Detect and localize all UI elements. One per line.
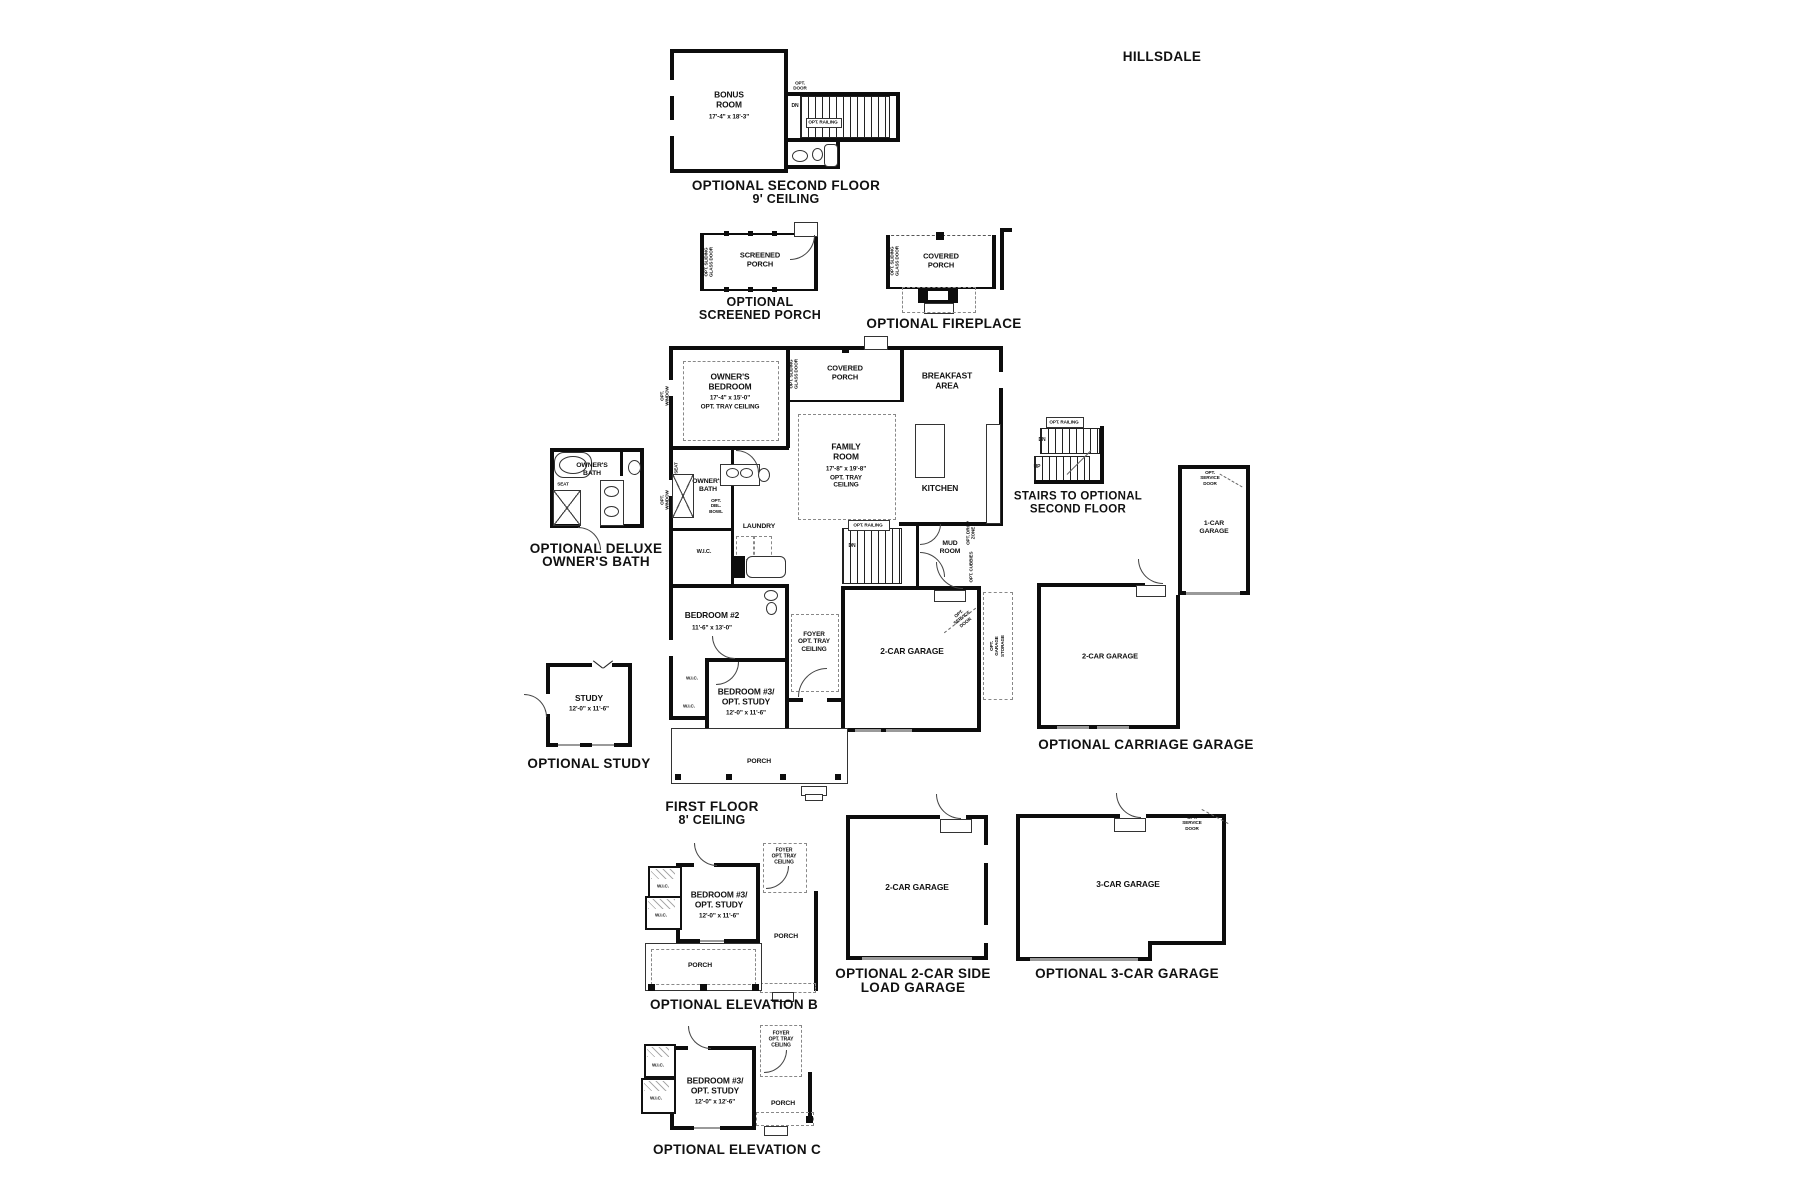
stair-treads xyxy=(800,96,890,138)
porch-post xyxy=(835,774,841,780)
vent-marker xyxy=(842,346,849,353)
wall xyxy=(1100,426,1104,484)
closet-hatch xyxy=(651,869,675,879)
bedroom2-dims: 11'-6" x 13'-0" xyxy=(692,624,732,631)
bedroom2-label: BEDROOM #2 xyxy=(685,611,739,621)
service-door-dash xyxy=(1219,474,1242,488)
bonus-room-dims: 17'-4" x 18'-3" xyxy=(709,113,749,120)
owners-bath-label: OWNER'S BATH xyxy=(576,462,608,478)
porch-label: PORCH xyxy=(747,758,771,766)
stair-treads xyxy=(842,528,902,584)
door-arc xyxy=(920,524,941,545)
toilet-fixture xyxy=(766,602,777,615)
study-label: STUDY xyxy=(575,694,603,704)
opt-sliding-note: OPT. SLIDING GLASS DOOR xyxy=(704,247,715,277)
wall xyxy=(620,448,623,476)
garage-door-mark xyxy=(1030,958,1138,961)
dn-label: DN xyxy=(848,544,855,550)
laundry-label: LAUNDRY xyxy=(743,523,775,531)
wall xyxy=(916,522,919,588)
toilet-fixture xyxy=(758,468,770,482)
garage-door-mark xyxy=(862,957,972,960)
wall xyxy=(788,400,902,402)
opt-service-door-note: OPT. SERVICE DOOR xyxy=(949,606,974,630)
fireplace-caption: OPTIONAL FIREPLACE xyxy=(866,316,1021,332)
wall xyxy=(669,528,734,531)
first-floor-ceiling: 8' CEILING xyxy=(678,813,745,827)
side-load-garage-label: 2-CAR GARAGE xyxy=(885,883,948,893)
closet-hatch xyxy=(648,899,675,909)
wall xyxy=(827,698,843,702)
wall xyxy=(900,346,904,402)
door-arc xyxy=(790,235,815,260)
garage-step xyxy=(940,819,972,833)
shower-fixture xyxy=(672,474,694,518)
closet-hatch xyxy=(644,1081,669,1091)
carriage-garage-caption: OPTIONAL CARRIAGE GARAGE xyxy=(1038,737,1253,753)
sink-fixture xyxy=(792,150,808,162)
wall xyxy=(670,49,788,53)
porch-post xyxy=(724,231,729,236)
foyer-label: FOYER OPT. TRAY CEILING xyxy=(769,1031,794,1048)
covered-porch-label: COVERED PORCH xyxy=(827,364,863,381)
dn-label: DN xyxy=(791,104,798,110)
wall xyxy=(1037,583,1145,587)
wall xyxy=(814,233,818,291)
two-car-garage-label: 2-CAR GARAGE xyxy=(1082,653,1138,662)
door-arc xyxy=(1138,559,1163,584)
opt-drop-zone-note: OPT. DROP ZONE xyxy=(966,521,977,545)
garage-door-mark xyxy=(1097,726,1129,729)
wic-label: W.I.C. xyxy=(697,549,712,555)
wall xyxy=(846,815,850,960)
kitchen-label: KITCHEN xyxy=(922,484,959,494)
window-gap xyxy=(670,120,674,136)
bedroom3-dims: 12'-0" x 11'-6" xyxy=(699,912,739,919)
wall xyxy=(1222,814,1226,945)
porch-post xyxy=(772,287,777,292)
opt-railing-label: OPT. RAILING xyxy=(853,522,882,527)
elevation-c-caption: OPTIONAL ELEVATION C xyxy=(653,1142,821,1158)
seat-label: SEAT xyxy=(557,481,569,486)
deluxe-bath-caption2: OWNER'S BATH xyxy=(542,554,650,570)
wall xyxy=(669,584,789,588)
family-room-dims: 17'-8" x 19'-8" xyxy=(826,465,866,472)
wall xyxy=(669,446,789,450)
shower-fixture xyxy=(553,490,581,526)
bedroom3-label: BEDROOM #3/ OPT. STUDY xyxy=(687,1076,744,1095)
sink-fixture xyxy=(604,486,619,497)
wall xyxy=(1034,480,1104,484)
door-arc xyxy=(936,562,963,589)
one-car-garage-label: 1-CAR GARAGE xyxy=(1199,520,1228,536)
seat-label: SEAT xyxy=(673,462,678,474)
wall xyxy=(640,448,644,528)
opt-sliding-note: OPT. SLIDING GLASS DOOR xyxy=(890,246,901,276)
porch-post xyxy=(648,984,655,991)
owners-bedroom-label: OWNER'S BEDROOM xyxy=(708,372,751,391)
tub-fixture xyxy=(824,144,838,167)
hearth-outline xyxy=(902,287,976,313)
wall xyxy=(784,49,788,173)
wic-label: W.I.C. xyxy=(652,1062,664,1067)
front-step xyxy=(805,794,823,801)
screened-porch-caption2: SCREENED PORCH xyxy=(699,308,821,322)
wall xyxy=(628,663,632,747)
foyer-label: FOYER OPT. TRAY CEILING xyxy=(798,631,830,653)
wall xyxy=(669,346,1003,350)
wall xyxy=(756,863,760,943)
garage-step xyxy=(1136,585,1166,597)
kitchen-island xyxy=(915,424,945,478)
window-gap xyxy=(669,640,673,656)
wall xyxy=(841,586,845,732)
wall xyxy=(1000,228,1012,232)
covered-porch-label: COVERED PORCH xyxy=(923,252,959,269)
study-dims: 12'-0" x 11'-6" xyxy=(569,705,609,712)
three-car-caption: OPTIONAL 3-CAR GARAGE xyxy=(1035,966,1219,982)
wic-label: W.I.C. xyxy=(655,912,667,917)
closet-hatch xyxy=(647,1047,669,1057)
wall xyxy=(1037,583,1041,729)
opt-garage-storage-note: OPT. GARAGE STORAGE xyxy=(989,635,1005,657)
wall xyxy=(1000,230,1004,290)
door-arc xyxy=(736,450,759,473)
wall xyxy=(814,891,818,991)
wic-label: W.I.C. xyxy=(683,703,695,708)
window-line xyxy=(694,1127,720,1129)
wall xyxy=(669,716,709,720)
wall xyxy=(1178,465,1250,469)
screened-porch-label: SCREENED PORCH xyxy=(740,251,780,268)
opt-service-door-note: OPT. SERVICE DOOR xyxy=(1200,470,1219,486)
wall xyxy=(1016,814,1020,961)
wall xyxy=(1148,941,1226,945)
mud-room-label: MUD ROOM xyxy=(940,540,961,556)
porch-post xyxy=(675,774,681,780)
floorplan-sheet: HILLSDALE OPT. RAILING DN OPT. DOOR BONU… xyxy=(0,0,1800,1200)
wall xyxy=(1240,591,1250,595)
opt-sliding-note: OPT. SLIDING GLASS DOOR xyxy=(789,359,800,389)
opt-service-door-note: OPT. SERVICE DOOR xyxy=(1182,815,1201,831)
wall xyxy=(670,1046,754,1050)
kitchen-counter xyxy=(986,424,1001,524)
foyer-label: FOYER OPT. TRAY CEILING xyxy=(772,848,797,865)
garage-label: 2-CAR GARAGE xyxy=(880,647,943,657)
family-room-label: FAMILY ROOM xyxy=(831,442,860,461)
wall xyxy=(700,289,818,291)
up-label: UP xyxy=(1034,465,1041,471)
bedroom3-dims: 12'-0" x 12'-6" xyxy=(695,1098,735,1105)
wall xyxy=(670,169,788,173)
study-caption: OPTIONAL STUDY xyxy=(527,756,650,772)
garage-step xyxy=(934,590,966,602)
porch-label: PORCH xyxy=(688,962,712,970)
garage-door-mark xyxy=(886,729,912,732)
window-line xyxy=(558,744,580,746)
wic-label: W.I.C. xyxy=(657,883,669,888)
door-arc xyxy=(524,694,547,717)
plan-title: HILLSDALE xyxy=(1123,49,1201,65)
bedroom3-label: BEDROOM #3/ OPT. STUDY xyxy=(718,687,775,706)
wall xyxy=(546,663,632,667)
opt-door-label: OPT. DOOR xyxy=(793,81,806,92)
garage-door-mark xyxy=(1182,592,1246,595)
opt-window-note: OPT. WINDOW xyxy=(660,386,671,406)
sink-fixture xyxy=(764,590,778,601)
stairs-caption2: SECOND FLOOR xyxy=(1030,503,1126,516)
door-arc xyxy=(712,636,735,659)
garage-door-mark xyxy=(1057,726,1089,729)
second-floor-ceiling: 9' CEILING xyxy=(752,192,819,206)
wall xyxy=(1178,465,1182,595)
window-line xyxy=(700,940,724,942)
toilet-fixture xyxy=(812,148,823,161)
window-gap xyxy=(670,80,674,96)
window-gap xyxy=(984,845,988,863)
wic-label: W.I.C. xyxy=(686,675,698,680)
opt-dbl-bowl-label: OPT. DBL. BOWL xyxy=(709,498,723,514)
opt-railing-label: OPT. RAILING xyxy=(808,119,837,124)
opt-railing-label: OPT. RAILING xyxy=(1049,419,1078,424)
front-step xyxy=(764,1126,788,1136)
owners-bedroom-note: OPT. TRAY CEILING xyxy=(701,403,760,410)
wall-niche xyxy=(731,556,745,578)
door-gap xyxy=(546,694,550,714)
porch-post xyxy=(748,231,753,236)
wic-label: W.I.C. xyxy=(650,1095,662,1100)
tub-fixture xyxy=(746,556,786,578)
wall xyxy=(977,586,981,732)
porch-post xyxy=(752,984,759,991)
toilet-fixture xyxy=(628,460,641,475)
stairs-caption1: STAIRS TO OPTIONAL xyxy=(1014,490,1142,503)
bedroom3-label: BEDROOM #3/ OPT. STUDY xyxy=(691,890,748,909)
garage-step xyxy=(1114,818,1146,832)
wall xyxy=(670,49,674,173)
porch-post xyxy=(724,287,729,292)
wall xyxy=(992,235,996,289)
sink-fixture xyxy=(604,506,619,517)
wall xyxy=(788,138,900,142)
wall xyxy=(789,698,803,702)
wall xyxy=(785,584,789,740)
owners-bedroom-dims: 17'-4" x 15'-0" xyxy=(710,394,750,401)
wall xyxy=(1176,595,1180,729)
window-gap xyxy=(984,925,988,943)
bonus-room-label: BONUS ROOM xyxy=(714,90,744,109)
bedroom3-dims: 12'-0" x 11'-6" xyxy=(726,709,766,716)
wall xyxy=(676,863,760,867)
porch-post xyxy=(772,231,777,236)
wall xyxy=(896,92,900,142)
three-car-garage-label: 3-CAR GARAGE xyxy=(1096,880,1159,890)
porch-post xyxy=(748,287,753,292)
window-gap xyxy=(999,372,1003,388)
door-arc xyxy=(716,662,739,685)
opt-window-note: OPT. WINDOW xyxy=(660,490,671,510)
breakfast-area-label: BREAKFAST AREA xyxy=(922,371,972,390)
garage-door-mark xyxy=(855,729,881,732)
window-line xyxy=(592,744,614,746)
porch-post xyxy=(780,774,786,780)
porch-post xyxy=(700,984,707,991)
porch-outline xyxy=(671,728,848,784)
vent-marker xyxy=(936,232,944,240)
porch-post xyxy=(726,774,732,780)
family-room-note: OPT. TRAY CEILING xyxy=(830,475,862,490)
door-panel xyxy=(864,336,888,350)
porch-post xyxy=(806,1116,813,1123)
elevation-b-caption: OPTIONAL ELEVATION B xyxy=(650,997,818,1013)
opt-cubbies-note: OPT. CUBBIES xyxy=(968,552,973,583)
wall xyxy=(1246,465,1250,595)
porch-label: PORCH xyxy=(771,1100,795,1108)
side-load-caption2: LOAD GARAGE xyxy=(861,980,966,996)
porch-label: PORCH xyxy=(774,933,798,941)
dn-label: DN xyxy=(1038,438,1045,444)
